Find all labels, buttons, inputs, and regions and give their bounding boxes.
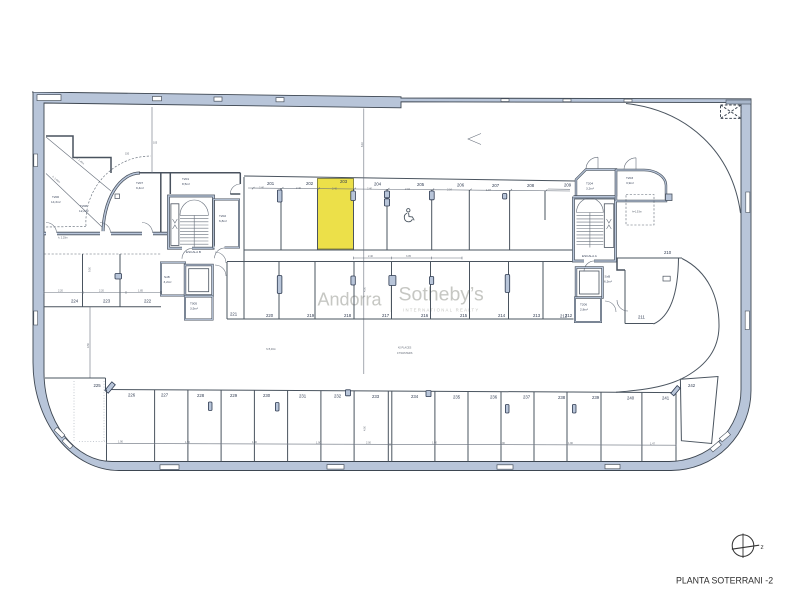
svg-text:T005: T005 (190, 302, 197, 306)
svg-text:211: 211 (638, 315, 645, 320)
svg-text:1.90: 1.90 (500, 442, 505, 445)
svg-text:2.20: 2.20 (99, 290, 104, 293)
svg-text:207: 207 (492, 183, 500, 188)
svg-text:238: 238 (558, 395, 566, 400)
svg-text:222: 222 (144, 299, 152, 304)
svg-text:z: z (761, 544, 764, 551)
svg-text:h=5,00m: h=5,00m (266, 348, 276, 351)
svg-text:PLANTA SOTERRANI -2: PLANTA SOTERRANI -2 (676, 576, 773, 586)
svg-text:235: 235 (453, 394, 461, 399)
svg-text:214: 214 (498, 313, 506, 318)
svg-text:240: 240 (627, 395, 635, 400)
svg-text:1.90: 1.90 (252, 441, 257, 444)
svg-text:8,5m²: 8,5m² (182, 182, 190, 186)
svg-text:221: 221 (230, 312, 238, 317)
svg-text:226: 226 (128, 392, 136, 397)
svg-text:T207: T207 (136, 181, 143, 185)
svg-text:2.40: 2.40 (368, 255, 373, 258)
svg-text:1.90: 1.90 (568, 442, 573, 445)
svg-text:208: 208 (527, 183, 535, 188)
svg-text:2.40: 2.40 (296, 187, 301, 190)
svg-text:3,2m²: 3,2m² (586, 187, 594, 191)
svg-text:202: 202 (306, 181, 314, 186)
svg-text:105: 105 (153, 142, 158, 145)
svg-text:12,2m²: 12,2m² (79, 209, 89, 213)
svg-text:216: 216 (421, 313, 429, 318)
svg-text:T200: T200 (52, 195, 59, 199)
svg-text:INTERNATIONAL REALTY: INTERNATIONAL REALTY (403, 308, 480, 313)
svg-text:9.50: 9.50 (89, 267, 92, 272)
svg-text:234: 234 (411, 394, 419, 399)
svg-text:1.90: 1.90 (432, 442, 437, 445)
svg-text:241: 241 (662, 396, 670, 401)
svg-text:2.04: 2.04 (405, 188, 410, 191)
svg-text:150: 150 (125, 153, 130, 156)
svg-text:2.40: 2.40 (259, 187, 264, 190)
svg-text:219: 219 (307, 313, 315, 318)
svg-text:6,3m²: 6,3m² (604, 280, 612, 284)
svg-text:h=1,53m: h=1,53m (632, 211, 642, 214)
svg-text:9 TRASTERS: 9 TRASTERS (397, 352, 413, 355)
svg-text:1.90: 1.90 (316, 441, 321, 444)
svg-text:9,4m²: 9,4m² (136, 186, 144, 190)
svg-text:1.90: 1.90 (185, 441, 190, 444)
svg-text:232: 232 (334, 394, 342, 399)
svg-text:2.00: 2.00 (366, 442, 371, 445)
svg-text:h. 2,20m: h. 2,20m (58, 237, 68, 240)
svg-text:SxB: SxB (164, 275, 170, 279)
svg-text:204: 204 (374, 182, 382, 187)
svg-text:Sotheby’s: Sotheby’s (399, 284, 485, 306)
svg-text:224: 224 (71, 299, 79, 304)
svg-text:ESCALA B: ESCALA B (186, 250, 201, 254)
svg-text:42 PLACES: 42 PLACES (398, 347, 412, 350)
svg-text:228: 228 (197, 393, 205, 398)
svg-text:223: 223 (103, 299, 111, 304)
svg-text:4.50: 4.50 (364, 426, 367, 431)
svg-text:236: 236 (490, 395, 498, 400)
svg-text:231: 231 (299, 393, 307, 398)
svg-text:2,8m²: 2,8m² (580, 308, 588, 312)
svg-text:4.50: 4.50 (87, 343, 90, 348)
svg-text:220: 220 (266, 313, 274, 318)
svg-text:205: 205 (417, 182, 425, 187)
svg-text:230: 230 (263, 393, 271, 398)
svg-text:1.85: 1.85 (138, 290, 143, 293)
svg-text:2.40: 2.40 (332, 187, 337, 190)
svg-text:206: 206 (457, 182, 465, 187)
svg-text:210: 210 (664, 250, 672, 255)
svg-text:209: 209 (564, 183, 572, 188)
svg-text:6.10: 6.10 (361, 142, 364, 147)
svg-text:T208: T208 (80, 204, 87, 208)
svg-text:217: 217 (382, 313, 390, 318)
svg-text:203: 203 (340, 179, 348, 184)
svg-text:239: 239 (592, 395, 600, 400)
svg-text:T201: T201 (182, 177, 189, 181)
svg-text:213: 213 (533, 313, 541, 318)
svg-text:2.20: 2.20 (58, 290, 63, 293)
svg-text:237: 237 (523, 395, 531, 400)
svg-text:201: 201 (267, 181, 275, 186)
svg-text:3,5m²: 3,5m² (190, 307, 198, 311)
svg-text:Andorra: Andorra (318, 290, 383, 310)
svg-text:2.04: 2.04 (447, 188, 452, 191)
svg-text:2.40: 2.40 (367, 188, 372, 191)
svg-text:1.90: 1.90 (118, 441, 123, 444)
svg-text:3,9m²: 3,9m² (626, 181, 634, 185)
svg-text:SxB: SxB (605, 275, 611, 279)
svg-text:229: 229 (230, 393, 238, 398)
svg-text:218: 218 (344, 313, 352, 318)
svg-text:T203: T203 (626, 176, 633, 180)
svg-text:1.97: 1.97 (486, 189, 491, 192)
svg-text:ESCALA A: ESCALA A (582, 254, 598, 258)
svg-text:227: 227 (161, 393, 169, 398)
svg-text:242: 242 (688, 383, 696, 388)
svg-text:14,3m²: 14,3m² (51, 200, 61, 204)
svg-text:3.05: 3.05 (406, 255, 411, 258)
svg-text:4.50: 4.50 (364, 287, 367, 292)
svg-text:6,8m²: 6,8m² (219, 219, 227, 223)
svg-text:233: 233 (372, 394, 380, 399)
svg-text:T202: T202 (219, 214, 226, 218)
svg-text:3,2m²: 3,2m² (164, 280, 172, 284)
svg-text:215: 215 (460, 313, 468, 318)
svg-text:212: 212 (560, 314, 568, 319)
svg-text:T206: T206 (580, 303, 587, 307)
svg-text:1.47: 1.47 (650, 442, 655, 445)
svg-text:225: 225 (94, 383, 102, 388)
svg-text:T204: T204 (586, 182, 593, 186)
